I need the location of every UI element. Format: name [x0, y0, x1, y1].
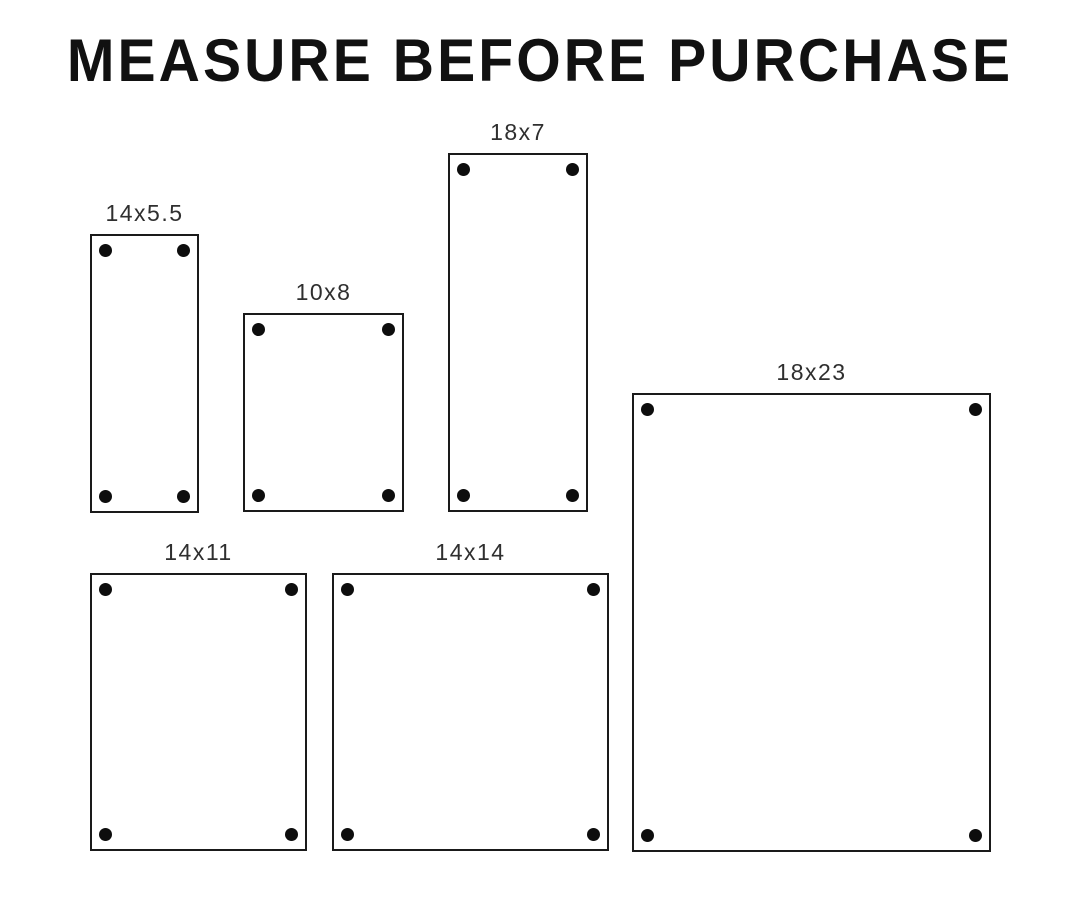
size-panel-14x14: 14x14	[332, 573, 609, 851]
mounting-hole-dot	[382, 489, 395, 502]
mounting-hole-dot	[99, 490, 112, 503]
mounting-hole-dot	[177, 244, 190, 257]
size-label: 10x8	[205, 279, 442, 306]
size-label: 14x14	[294, 539, 647, 566]
mounting-hole-dot	[457, 489, 470, 502]
mounting-hole-dot	[641, 403, 654, 416]
mounting-hole-dot	[587, 583, 600, 596]
mounting-hole-dot	[969, 403, 982, 416]
mounting-hole-dot	[641, 829, 654, 842]
size-label: 18x7	[410, 119, 626, 146]
mounting-hole-dot	[252, 323, 265, 336]
size-panel-10x8: 10x8	[243, 313, 404, 512]
mounting-hole-dot	[969, 829, 982, 842]
mounting-hole-dot	[99, 244, 112, 257]
mounting-hole-dot	[177, 490, 190, 503]
size-panel-18x23: 18x23	[632, 393, 991, 852]
mounting-hole-dot	[99, 828, 112, 841]
mounting-hole-dot	[566, 163, 579, 176]
mounting-hole-dot	[341, 828, 354, 841]
mounting-hole-dot	[382, 323, 395, 336]
size-panel-18x7: 18x7	[448, 153, 588, 512]
mounting-hole-dot	[566, 489, 579, 502]
mounting-hole-dot	[285, 583, 298, 596]
mounting-hole-dot	[341, 583, 354, 596]
size-panel-14x5.5: 14x5.5	[90, 234, 199, 513]
size-panel-14x11: 14x11	[90, 573, 307, 851]
size-guide-canvas: MEASURE BEFORE PURCHASE 14x5.510x818x718…	[0, 0, 1080, 901]
size-label: 14x5.5	[52, 200, 237, 227]
mounting-hole-dot	[587, 828, 600, 841]
mounting-hole-dot	[285, 828, 298, 841]
size-label: 18x23	[594, 359, 1029, 386]
page-title: MEASURE BEFORE PURCHASE	[0, 30, 1080, 90]
mounting-hole-dot	[252, 489, 265, 502]
mounting-hole-dot	[457, 163, 470, 176]
mounting-hole-dot	[99, 583, 112, 596]
